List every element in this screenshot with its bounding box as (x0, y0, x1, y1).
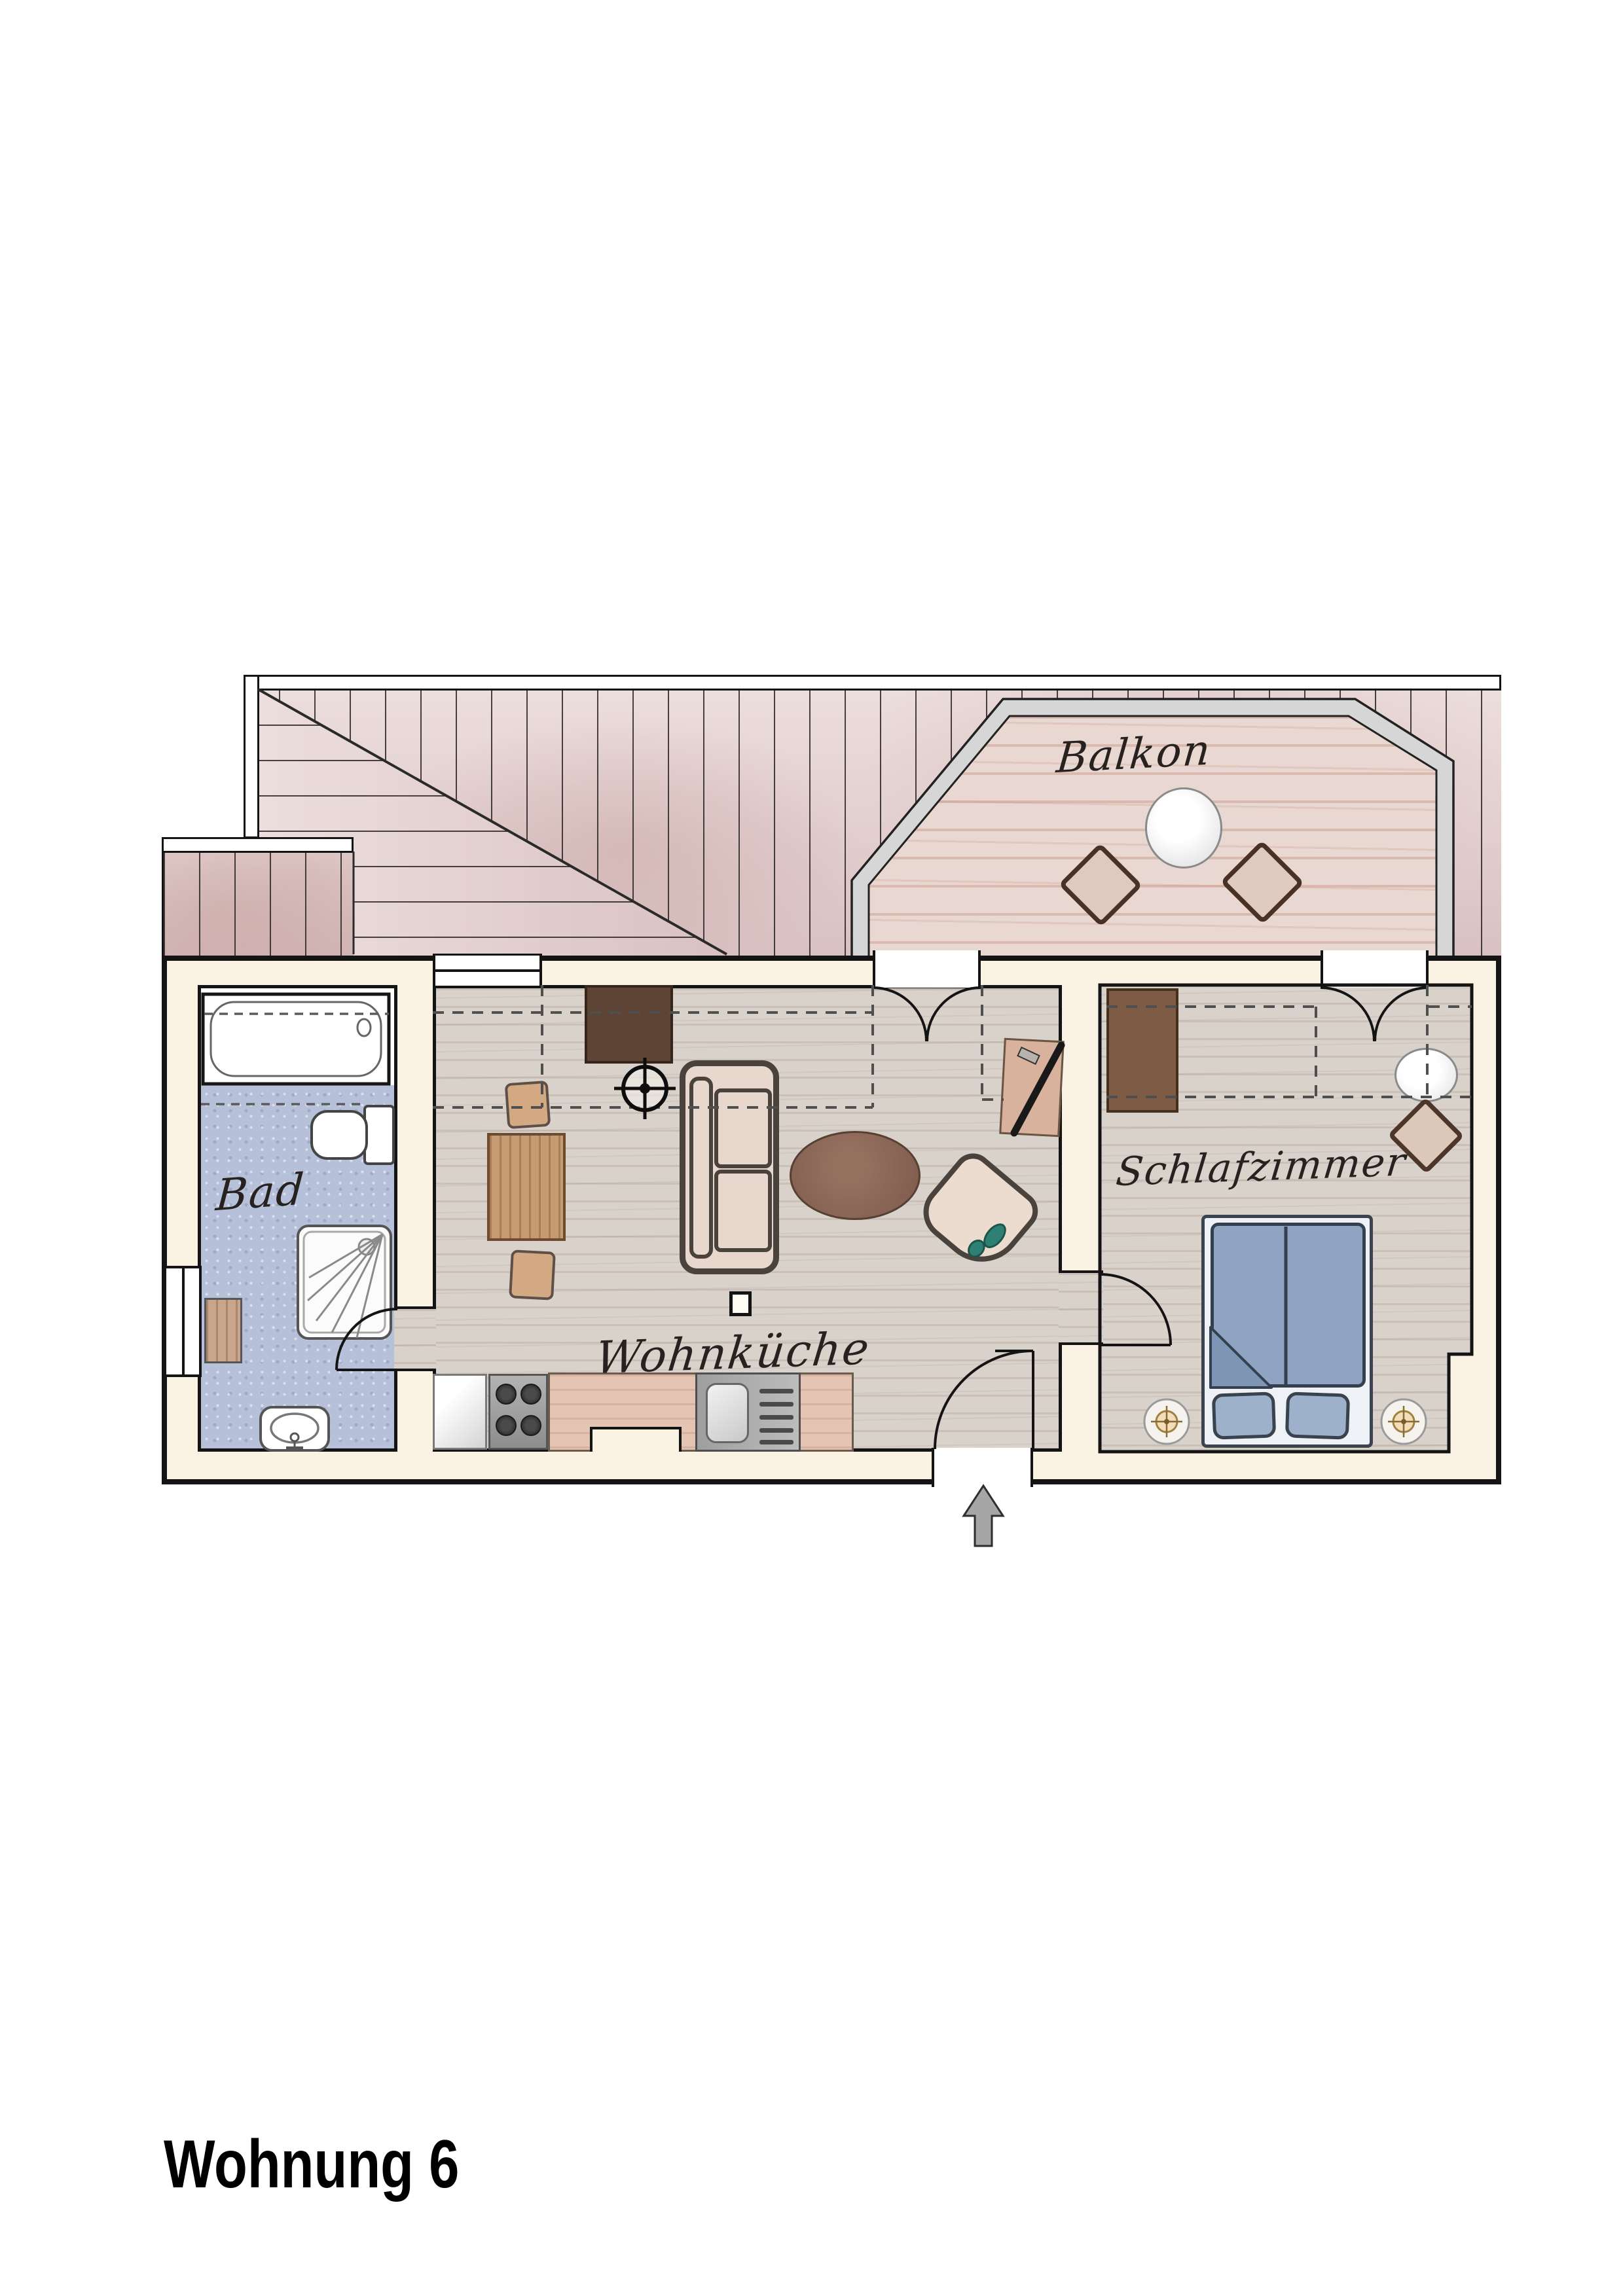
burner (520, 1384, 541, 1405)
stool-bottom (509, 1249, 556, 1300)
bed-pillow-left (1212, 1391, 1276, 1439)
entrance-arrow-icon (964, 1486, 1003, 1546)
sink-basin (706, 1383, 749, 1443)
burner (496, 1415, 517, 1436)
page-title: Wohnung 6 (164, 2126, 459, 2204)
floor-marker-square (729, 1291, 752, 1316)
oval-coffee-table (790, 1131, 921, 1220)
sink-rack-bar (759, 1428, 793, 1433)
bathroom-shelf (204, 1298, 242, 1363)
sink-rack-bar (759, 1415, 793, 1420)
bathroom-door-opening (394, 1306, 436, 1371)
bed-pillow-right (1285, 1391, 1350, 1439)
bathroom-side-window-mullion (182, 1268, 185, 1374)
dining-table (487, 1133, 566, 1241)
bathroom-side-window (164, 1266, 202, 1377)
bedroom-round-table (1395, 1048, 1458, 1102)
label-balcony: Balkon (1055, 726, 1213, 783)
roof-fascia-top (244, 675, 1501, 691)
burner (520, 1415, 541, 1436)
balcony-door-living-opening (873, 950, 981, 988)
roof-fascia-left (244, 675, 259, 838)
bathtub-alcove (201, 988, 394, 1085)
stool-top (505, 1081, 551, 1129)
floor-plan-page: Balkon Bad Wohnküche Schlafzimmer Wohnun… (0, 0, 1623, 2296)
roof-left-wing-fascia (162, 837, 354, 853)
kitchen-sink-unit (695, 1372, 801, 1452)
sofa-backrest (689, 1077, 713, 1259)
stove (488, 1374, 548, 1450)
fridge-cabinet (433, 1374, 487, 1450)
sink-rack-bar (759, 1389, 793, 1393)
sink-rack-bar (759, 1440, 793, 1444)
counter-notch (590, 1427, 682, 1452)
label-bathroom: Bad (214, 1164, 306, 1221)
sink-rack-bar (759, 1402, 793, 1407)
window-top-mullion (435, 969, 539, 972)
balcony-table (1145, 787, 1222, 869)
bed-duvet (1211, 1223, 1366, 1388)
entrance-opening (932, 1448, 1033, 1487)
sofa (680, 1060, 779, 1274)
balcony-door-bedroom-opening (1321, 950, 1429, 988)
sofa-cushion-2 (714, 1170, 772, 1252)
burner (496, 1384, 517, 1405)
sofa-cushion-1 (714, 1088, 772, 1168)
window-top (433, 954, 542, 988)
label-living-kitchen: Wohnküche (593, 1323, 873, 1384)
chest (585, 985, 673, 1064)
desk (999, 1038, 1065, 1138)
bedroom-door-opening (1059, 1270, 1103, 1345)
wardrobe (1106, 988, 1178, 1113)
roof-left-wing (162, 852, 354, 956)
